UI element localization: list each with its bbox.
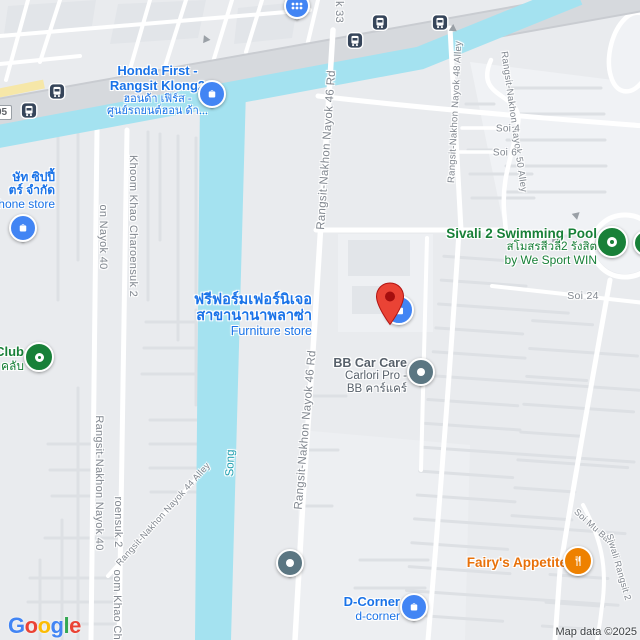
route-shield: 05 (0, 105, 12, 120)
dot-icon (276, 549, 304, 577)
google-logo[interactable]: Google (8, 613, 81, 639)
restaurant-pin[interactable] (563, 546, 593, 576)
poi-label-phone-store[interactable]: ษัท ซิปปี้ ตร์ จำกัด hone store (0, 171, 55, 211)
ring-icon (633, 230, 640, 256)
poi-label-fairys-appetite[interactable]: Fairy's Appetite (437, 555, 567, 570)
edge-pin[interactable] (633, 230, 640, 256)
bus-stop-icon[interactable] (347, 32, 364, 54)
road-label-soi-6: Soi 6 (493, 147, 517, 158)
dots-grid-icon (284, 0, 310, 19)
road-label-soi-4: Soi 4 (496, 123, 520, 134)
destination-marker[interactable] (375, 282, 405, 331)
club-pin[interactable] (24, 342, 54, 372)
shopping-bag-icon (198, 80, 226, 108)
poi-label-bb-car-care[interactable]: BB Car Care Carlori Pro - BB คาร์แคร์ (307, 356, 407, 396)
bb-car-care-pin[interactable] (407, 358, 435, 386)
road-label-nayok-33: k 33 (333, 1, 345, 23)
ring-icon (596, 226, 628, 258)
d-corner-pin[interactable] (400, 593, 428, 621)
dot-icon (407, 358, 435, 386)
water-label-song: Song (224, 449, 238, 476)
swimming-pool-pin[interactable] (596, 226, 628, 258)
road-label-soi-24: Soi 24 (567, 291, 599, 303)
road-label-khoom-khao-bottom: oom Khao Cha (111, 570, 123, 640)
honda-store-pin[interactable] (198, 80, 226, 108)
bus-stop-icon[interactable] (432, 14, 449, 36)
road-label-khoom-khao-mid: roensuk 2 (112, 496, 124, 547)
bus-stop-icon[interactable] (49, 83, 66, 105)
bus-stop-icon[interactable] (21, 102, 38, 124)
poi-label-sivali-pool[interactable]: Sivali 2 Swimming Pool สโมสรสีวลี2 รังสิ… (437, 226, 597, 267)
oneway-arrow-icon (449, 24, 457, 32)
phone-store-pin[interactable] (9, 214, 37, 242)
road-label-nayok-40-top: on Nayok 40 (97, 204, 109, 269)
road-label-khoom-khao-top: Khoom Khao Charoensuk 2 (127, 155, 139, 297)
poi-label-club[interactable]: Club คลับ (0, 345, 24, 373)
oneway-arrow-icon (203, 35, 211, 44)
ring-icon (24, 342, 54, 372)
bus-stop-icon[interactable] (372, 14, 389, 36)
store-pin[interactable] (284, 0, 310, 19)
poi-label-furniture-store[interactable]: ฟรีฟอร์มเฟอร์นิเจอ สาขานานาพลาซ่า Furnit… (182, 292, 312, 338)
poi-label-d-corner[interactable]: D-Corner d-corner (300, 595, 400, 623)
map-canvas[interactable]: 05 k 33 Rangsit-Nakhon Nayok 46 Rd Rangs… (0, 0, 640, 640)
shopping-bag-icon (400, 593, 428, 621)
shopping-bag-icon (9, 214, 37, 242)
place-pin[interactable] (276, 549, 304, 577)
road-label-nayok-40-bottom: Rangsit-Nakhon Nayok 40 (93, 415, 105, 550)
restaurant-icon (563, 546, 593, 576)
map-attribution[interactable]: Map data ©2025 (556, 626, 638, 638)
